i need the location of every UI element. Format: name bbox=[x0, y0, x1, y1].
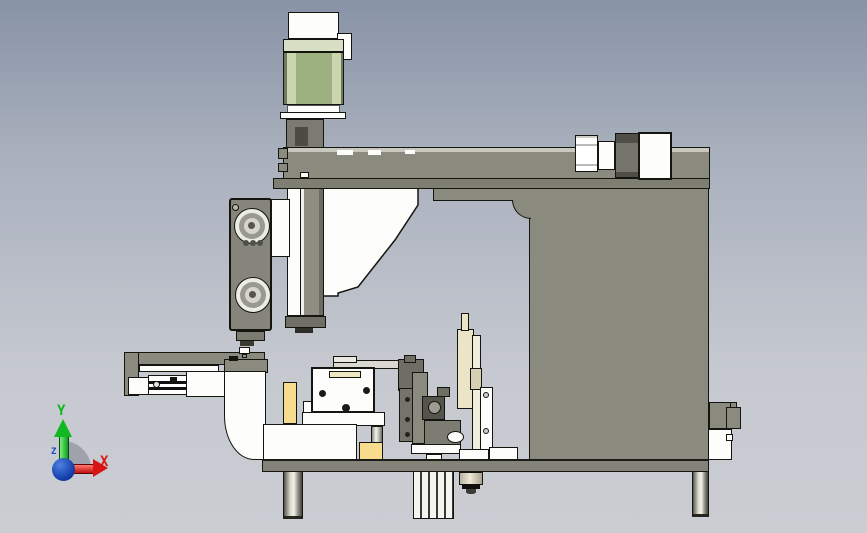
gripper-port1-hole bbox=[248, 222, 255, 229]
leg-right bbox=[692, 471, 709, 517]
x-axis-label: X bbox=[100, 455, 108, 469]
body-fillet bbox=[512, 200, 531, 219]
cad-viewport[interactable]: Y X Z bbox=[0, 0, 867, 533]
motor-bracket-notch bbox=[295, 127, 308, 146]
motor2-coupler-housing[interactable] bbox=[638, 132, 672, 180]
z-axis-label: Z bbox=[51, 448, 56, 457]
leg-left bbox=[283, 471, 303, 519]
probe-dot-1 bbox=[483, 392, 489, 398]
base-plate[interactable] bbox=[262, 459, 709, 472]
gripper-vent-1 bbox=[243, 240, 249, 246]
gripper-vent-2 bbox=[250, 240, 256, 246]
shelf-dark-bit bbox=[229, 356, 238, 361]
probe-rod bbox=[461, 313, 469, 331]
beam-end-tab-1 bbox=[278, 148, 288, 159]
side-block-step bbox=[726, 407, 741, 429]
rail-end-pin bbox=[295, 328, 313, 333]
actuator-stop bbox=[170, 377, 177, 382]
vertical-rail[interactable] bbox=[300, 185, 324, 316]
shelf-screw-stem bbox=[242, 354, 247, 358]
buffer-pad-right[interactable] bbox=[359, 442, 383, 460]
motor2-endcap bbox=[575, 135, 598, 172]
motor-body[interactable] bbox=[283, 52, 344, 105]
bracket-screw-2 bbox=[405, 417, 410, 422]
bracket-oval bbox=[447, 431, 464, 443]
beam-slot-2 bbox=[368, 150, 381, 155]
c-bracket-top[interactable] bbox=[186, 371, 226, 397]
bracket-screw-1 bbox=[405, 397, 410, 402]
motor-flange bbox=[280, 112, 346, 119]
shelf-screw-cap bbox=[239, 347, 250, 354]
stage-screw-2 bbox=[363, 387, 370, 394]
motor2-body[interactable] bbox=[615, 133, 639, 178]
bracket-shelf bbox=[411, 444, 461, 454]
bracket-screw-3 bbox=[405, 432, 410, 437]
side-block-notch bbox=[726, 434, 733, 441]
gripper-port2-hole bbox=[249, 291, 256, 298]
stage-screw-3 bbox=[342, 404, 350, 412]
gripper-vent-3 bbox=[257, 240, 263, 246]
rail-end-cap bbox=[285, 316, 326, 328]
stage-slot bbox=[329, 371, 361, 378]
beam-end-tab-2 bbox=[278, 163, 288, 172]
c-bracket-column[interactable] bbox=[224, 371, 266, 460]
stage-screw-1 bbox=[319, 390, 326, 397]
ribbed-mount[interactable] bbox=[413, 471, 454, 519]
gripper-screw bbox=[232, 204, 239, 211]
y-axis-label: Y bbox=[57, 404, 65, 418]
motor-top-cap bbox=[288, 12, 339, 39]
probe-dot-2 bbox=[483, 428, 489, 434]
gripper-foot-pin bbox=[240, 341, 254, 346]
z-axis-origin-sphere[interactable] bbox=[52, 458, 75, 481]
beam-end-tab-3 bbox=[300, 172, 309, 178]
lens-nub bbox=[466, 489, 476, 494]
stage-arm-tab bbox=[333, 356, 357, 363]
beam-slot-3 bbox=[405, 150, 415, 154]
motor-collar bbox=[283, 39, 344, 52]
stage-front-block[interactable] bbox=[263, 424, 357, 461]
y-axis-arrowhead bbox=[54, 419, 72, 437]
bracket-arm-top bbox=[404, 355, 416, 363]
angled-mount-plate[interactable] bbox=[322, 185, 420, 297]
gripper-foot bbox=[236, 331, 265, 341]
body-column[interactable] bbox=[529, 185, 709, 460]
side-block-nub bbox=[730, 402, 737, 408]
beam-slot-1 bbox=[337, 150, 353, 155]
bearing-bore bbox=[428, 401, 441, 414]
buffer-pad-left[interactable] bbox=[283, 382, 297, 424]
actuator-screw bbox=[153, 381, 160, 388]
motor2-neck bbox=[598, 141, 615, 170]
